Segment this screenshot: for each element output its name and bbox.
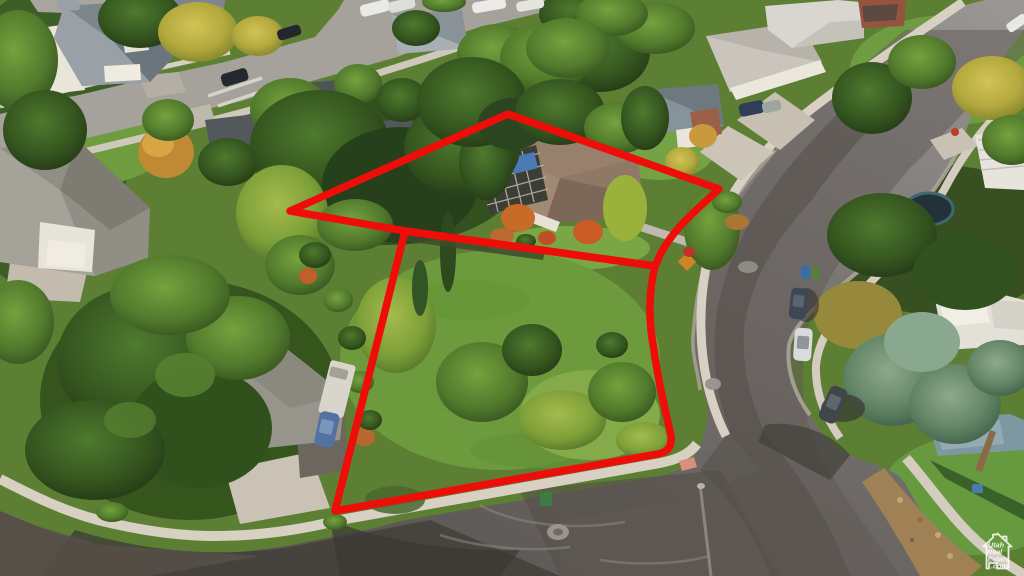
svg-text:.com: .com	[991, 562, 1008, 571]
